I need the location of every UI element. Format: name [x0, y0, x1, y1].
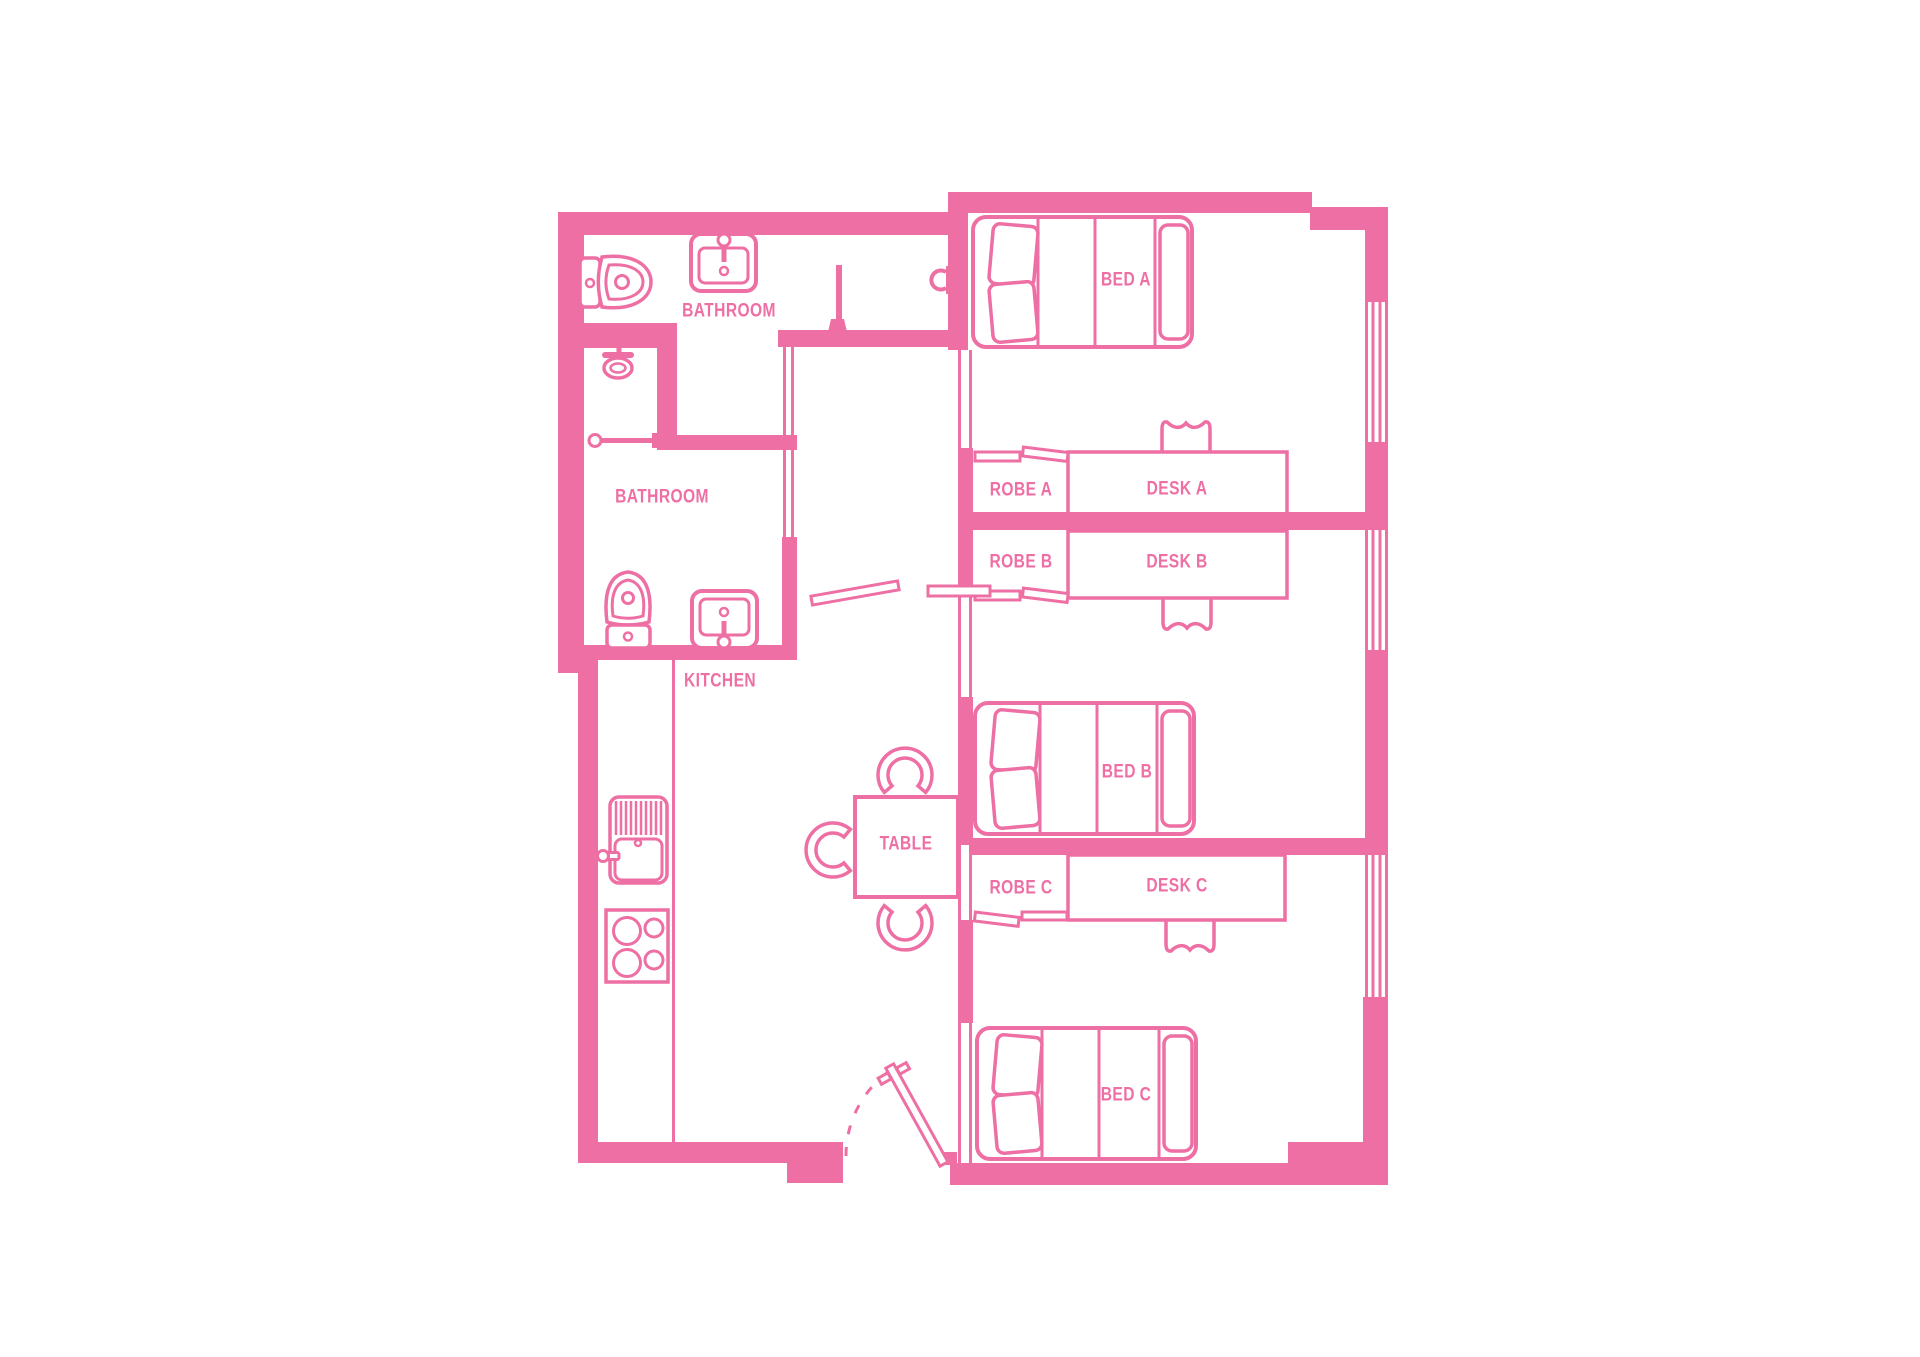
bed-c	[977, 1028, 1196, 1159]
label-kitchen: KITCHEN	[684, 672, 756, 691]
label-table: TABLE	[880, 835, 933, 854]
label-bathroom-top: BATHROOM	[682, 302, 776, 321]
label-bed-c: BED C	[1101, 1086, 1152, 1105]
bed-b	[975, 703, 1194, 834]
sink-icon	[692, 591, 757, 648]
bed-a	[973, 217, 1192, 347]
label-bathroom-mid: BATHROOM	[615, 488, 709, 507]
table-chair-icon	[878, 748, 932, 792]
toilet-icon	[580, 256, 651, 307]
robe-c-sliders	[974, 912, 1067, 926]
kitchen-sink-icon	[598, 797, 668, 883]
label-bed-b: BED B	[1102, 763, 1153, 782]
label-desk-a: DESK A	[1147, 480, 1208, 499]
label-robe-b: ROBE B	[989, 553, 1052, 572]
desk-chair-icon	[1166, 920, 1214, 951]
shower-icon	[602, 342, 634, 378]
desk-chair-icon	[1163, 598, 1211, 629]
label-desk-b: DESK B	[1146, 553, 1207, 572]
fixtures-layer	[0, 0, 1920, 1357]
desk-chair-icon	[1162, 422, 1210, 452]
door-handle-icon	[931, 266, 962, 294]
bathroom1-door-leaf	[828, 265, 847, 332]
stove-icon	[606, 910, 668, 982]
robe-a-sliders	[975, 447, 1068, 461]
table-chair-icon	[878, 906, 932, 950]
bathroom2-door-leaf	[589, 433, 658, 448]
floor-plan: BATHROOM BATHROOM KITCHEN TABLE BED A BE…	[0, 0, 1920, 1357]
sink-icon	[691, 234, 756, 291]
label-bed-a: BED A	[1101, 271, 1151, 290]
label-robe-c: ROBE C	[989, 879, 1052, 898]
label-desk-c: DESK C	[1146, 877, 1207, 896]
table-chair-icon	[806, 823, 850, 877]
bedroom-b-door	[811, 581, 990, 605]
entry-door-leaf	[876, 1058, 958, 1171]
toilet-icon	[606, 572, 650, 648]
label-robe-a: ROBE A	[990, 481, 1052, 500]
